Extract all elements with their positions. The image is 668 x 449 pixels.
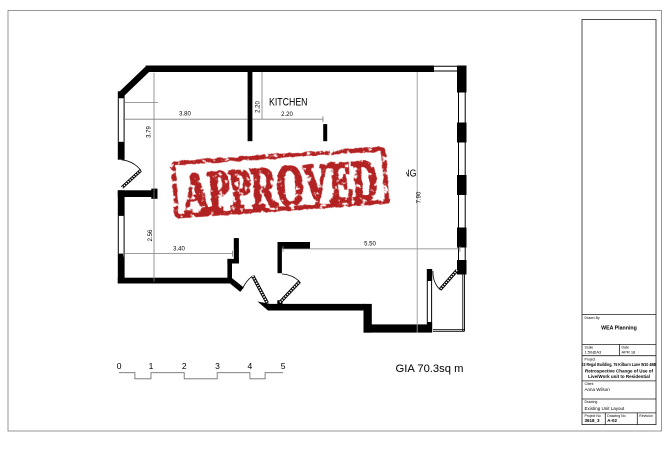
svg-text:3.40: 3.40 (173, 246, 185, 252)
svg-text:4: 4 (248, 361, 253, 371)
svg-text:1: 1 (149, 361, 154, 371)
svg-text:2.20: 2.20 (281, 112, 293, 118)
svg-text:2.20: 2.20 (256, 101, 262, 113)
svg-text:A-02: A-02 (607, 418, 617, 423)
svg-text:Drawn By: Drawn By (585, 316, 600, 320)
svg-text:Anna Wilson: Anna Wilson (585, 387, 611, 392)
svg-text:0: 0 (117, 361, 122, 371)
svg-text:5.50: 5.50 (364, 242, 376, 248)
svg-text:3: 3 (215, 361, 220, 371)
svg-text:7.90: 7.90 (417, 191, 423, 203)
svg-text:Retrospective Change of Use of: Retrospective Change of Use of (585, 368, 654, 373)
svg-text:3.80: 3.80 (179, 112, 191, 118)
svg-text:APPROVED: APPROVED (181, 147, 380, 225)
svg-text:23 Regal Building, 75 Kilburn: 23 Regal Building, 75 Kilburn Lane W10 4… (582, 362, 658, 367)
svg-text:Project: Project (585, 358, 596, 362)
svg-text:2: 2 (182, 361, 187, 371)
svg-text:Revision: Revision (639, 414, 652, 418)
svg-text:Existing Unit Layout: Existing Unit Layout (585, 406, 626, 411)
svg-text:WEA Planning: WEA Planning (601, 326, 637, 332)
svg-text:5: 5 (281, 361, 286, 371)
svg-text:Client: Client (585, 382, 594, 386)
svg-text:Drawing: Drawing (585, 400, 598, 404)
svg-text:Live/Work unit to Residential: Live/Work unit to Residential (588, 374, 650, 379)
svg-text:Project No: Project No (585, 414, 601, 418)
svg-text:KITCHEN: KITCHEN (269, 96, 308, 108)
svg-text:1:50@A3: 1:50@A3 (585, 349, 603, 354)
svg-text:Drawing No: Drawing No (607, 414, 625, 418)
svg-text:3.79: 3.79 (147, 126, 153, 138)
svg-text:GIA 70.3sq m: GIA 70.3sq m (396, 363, 464, 375)
svg-text:2.56: 2.56 (148, 229, 154, 241)
svg-text:APR 18: APR 18 (622, 349, 637, 354)
svg-text:3618_3: 3618_3 (585, 418, 601, 423)
